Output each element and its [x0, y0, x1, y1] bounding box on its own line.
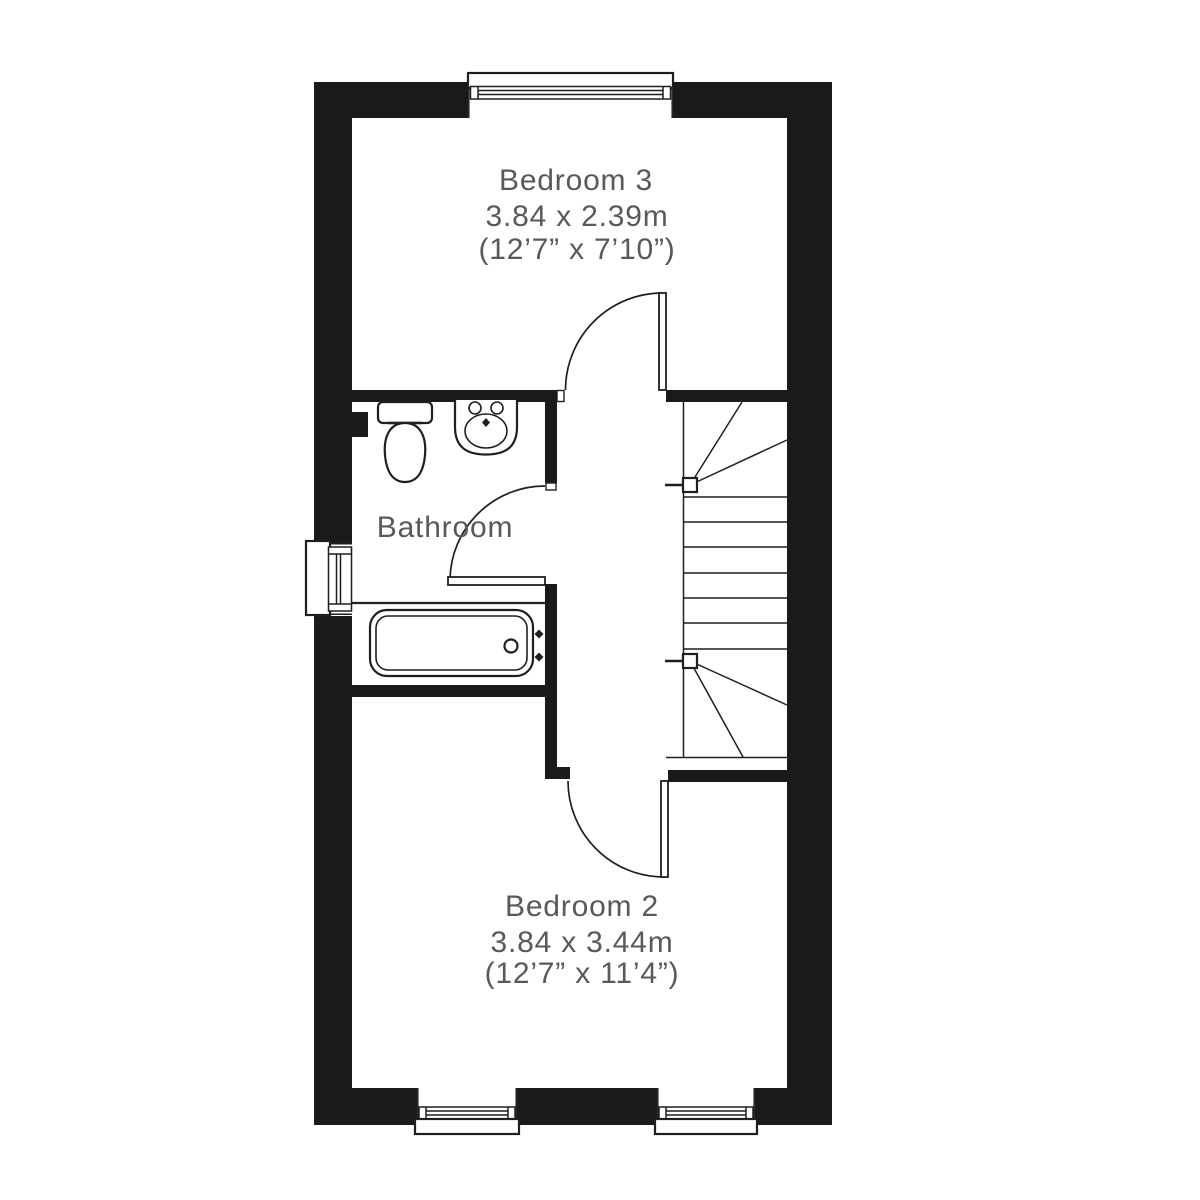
floorplan-canvas: Bedroom 3 3.84 x 2.39m (12’7” x 7’10”) B… — [0, 0, 1200, 1200]
toilet-bowl — [385, 423, 425, 482]
bath-tap-hot — [535, 630, 544, 639]
bath-tap-cold — [535, 653, 544, 662]
wall-bedroom2-door-jamb-left — [545, 767, 570, 779]
window-frame — [655, 1119, 757, 1134]
room-size-metric: 3.84 x 3.44m — [490, 926, 673, 959]
top-window — [468, 73, 673, 118]
wall-bedroom3-landing — [666, 390, 787, 402]
toilet — [378, 402, 432, 482]
staircase-winders-top — [690, 402, 787, 485]
toilet-cistern — [378, 402, 432, 423]
newel-post-bottom — [683, 654, 697, 668]
basin-tap-right — [491, 402, 503, 414]
room-name: Bathroom — [377, 511, 513, 544]
door-leaf — [661, 781, 668, 877]
door-swing-arc — [566, 293, 663, 390]
door-leaf — [448, 577, 545, 585]
bottom-left-window — [415, 1088, 519, 1134]
outer-wall-bottom-right — [755, 1088, 832, 1125]
outer-wall-bottom-left — [314, 1088, 417, 1125]
bedroom-2-door — [568, 781, 668, 877]
outer-wall-right — [787, 82, 832, 1125]
window-frame — [415, 1119, 519, 1134]
bedroom-3-label: Bedroom 3 3.84 x 2.39m (12’7” x 7’10”) — [478, 164, 675, 266]
outer-wall-bottom-middle — [517, 1088, 657, 1125]
staircase-winders-bottom — [690, 661, 787, 757]
wall-bathroom-right-lower — [545, 584, 557, 770]
basin — [455, 400, 517, 455]
wall-bathroom-right-upper — [545, 402, 557, 483]
bath-drain — [505, 640, 518, 653]
floorplan-page: Bedroom 3 3.84 x 2.39m (12’7” x 7’10”) B… — [0, 0, 1200, 1200]
bottom-right-window — [655, 1088, 757, 1134]
wall-bedroom2-landing — [668, 770, 787, 782]
bathroom-label: Bathroom — [377, 511, 513, 544]
wall-bathroom-bedroom2 — [352, 685, 557, 697]
outer-wall-left-upper — [314, 82, 352, 543]
newel-post-top — [683, 478, 697, 492]
bedroom-3-door — [566, 293, 667, 390]
door-jamb-bedroom3 — [557, 391, 564, 402]
bathroom-wall-pier — [352, 412, 368, 437]
room-size-imperial: (12’7” x 7’10”) — [478, 233, 675, 266]
window-glazing — [471, 87, 671, 100]
bedroom-2-label: Bedroom 2 3.84 x 3.44m (12’7” x 11’4”) — [485, 890, 680, 990]
staircase — [665, 402, 787, 758]
window-frame — [306, 541, 330, 615]
bathtub — [352, 603, 545, 676]
room-size-metric: 3.84 x 2.39m — [485, 200, 668, 233]
left-window — [306, 541, 352, 615]
room-name: Bedroom 3 — [499, 164, 653, 197]
door-leaf — [659, 293, 666, 390]
room-size-imperial: (12’7” x 11’4”) — [485, 957, 680, 990]
outer-wall-left-lower — [314, 616, 352, 1125]
staircase-treads — [684, 497, 788, 649]
door-swing-arc — [568, 781, 664, 877]
room-name: Bedroom 2 — [505, 890, 659, 923]
basin-tap-left — [469, 402, 481, 414]
door-jamb-bathroom — [546, 483, 556, 490]
